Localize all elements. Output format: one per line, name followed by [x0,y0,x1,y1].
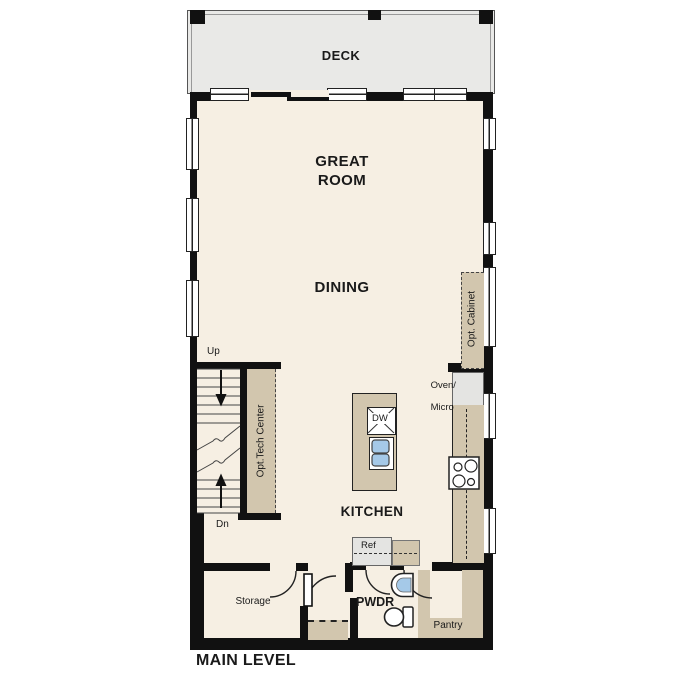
deck-label: DECK [291,46,391,65]
plan-linework [0,0,687,687]
oven-micro-label: Oven/ Micro [420,369,452,424]
opt-cabinet-label: Opt. Cabinet [467,291,478,347]
opt-tech-center-label: Opt.Tech Center [256,405,267,478]
floor-plan: DECK GREAT ROOM DINING KITCHEN PWDR Stor… [0,0,687,687]
pantry-label: Pantry [408,620,488,631]
powder-sink [392,574,413,597]
main-level-title: MAIN LEVEL [196,652,296,670]
dining-label: DINING [292,278,392,297]
oven-micro-line1: Oven/ [431,380,456,391]
pwdr-door-arc [366,570,390,594]
ref-label: Ref [359,540,378,551]
island-sink [372,440,389,466]
dw-label: DW [371,413,389,424]
stairs-up-label: Up [207,346,220,357]
storage-label: Storage [213,596,293,607]
kitchen-label: KITCHEN [322,502,422,521]
storage-door-arc [270,571,296,597]
entry-door [304,574,336,606]
great-room-label: GREAT ROOM [297,152,387,190]
stairs-down-label: Dn [216,519,229,530]
oven-micro-line2: Micro [431,402,454,413]
pwdr-label: PWDR [356,595,394,609]
cooktop [449,457,479,489]
